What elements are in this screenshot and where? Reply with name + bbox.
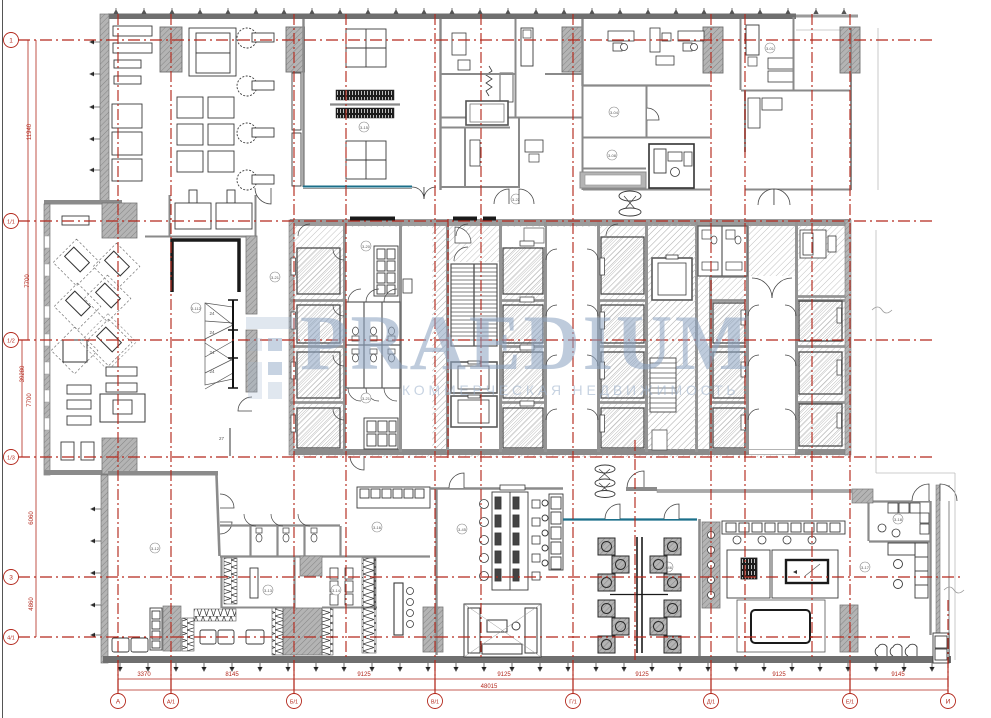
svg-text:1/3: 1/3 <box>7 456 15 462</box>
svg-text:PRAEDIUM: PRAEDIUM <box>300 299 751 386</box>
svg-text:9145: 9145 <box>891 672 905 678</box>
svg-text:3-20: 3-20 <box>362 244 371 249</box>
svg-text:3-14: 3-14 <box>332 588 341 593</box>
svg-text:3-01: 3-01 <box>766 46 775 51</box>
svg-text:3370: 3370 <box>137 672 151 678</box>
svg-text:11940: 11940 <box>27 123 33 140</box>
svg-text:4860: 4860 <box>29 597 35 611</box>
svg-text:9125: 9125 <box>497 672 511 678</box>
svg-text:3-21: 3-21 <box>362 396 371 401</box>
svg-text:А: А <box>116 699 121 706</box>
svg-text:1/2: 1/2 <box>7 339 15 345</box>
svg-text:39280: 39280 <box>20 365 26 382</box>
svg-text:3-17: 3-17 <box>861 565 870 570</box>
svg-text:3: 3 <box>9 575 13 582</box>
svg-text:1/1: 1/1 <box>7 220 15 226</box>
svg-text:И: И <box>946 699 951 706</box>
svg-text:7700: 7700 <box>25 274 31 288</box>
svg-text:3-21: 3-21 <box>271 275 280 280</box>
svg-text:3-12: 3-12 <box>151 546 160 551</box>
svg-text:3-13: 3-13 <box>264 588 273 593</box>
svg-text:9125: 9125 <box>772 672 786 678</box>
svg-text:4/1: 4/1 <box>7 636 15 642</box>
svg-text:24: 24 <box>209 311 215 316</box>
svg-text:Г/1: Г/1 <box>569 700 577 706</box>
svg-text:24: 24 <box>209 369 215 374</box>
svg-text:Б/1: Б/1 <box>290 700 298 706</box>
svg-text:3-15: 3-15 <box>360 125 369 130</box>
svg-text:27: 27 <box>219 436 225 441</box>
svg-text:9125: 9125 <box>357 672 371 678</box>
svg-text:Е/1: Е/1 <box>846 700 854 706</box>
svg-text:3-16: 3-16 <box>373 525 382 530</box>
svg-text:8145: 8145 <box>225 672 239 678</box>
svg-text:48015: 48015 <box>481 684 498 690</box>
svg-text:24: 24 <box>209 330 215 335</box>
svg-text:КОММЕРЧЕСКАЯ НЕДВИЖИМОСТЬ: КОММЕРЧЕСКАЯ НЕДВИЖИМОСТЬ <box>402 382 739 398</box>
svg-text:24: 24 <box>209 350 215 355</box>
svg-text:3-08: 3-08 <box>608 153 617 158</box>
svg-text:А/1: А/1 <box>167 700 175 706</box>
svg-text:1: 1 <box>9 38 13 45</box>
svg-text:3-04: 3-04 <box>610 110 619 115</box>
svg-text:В/1: В/1 <box>431 700 439 706</box>
svg-text:3-18: 3-18 <box>894 517 903 522</box>
svg-text:9125: 9125 <box>635 672 649 678</box>
svg-text:3-112: 3-112 <box>191 307 200 311</box>
svg-text:6060: 6060 <box>29 511 35 525</box>
svg-text:Д/1: Д/1 <box>707 700 715 706</box>
svg-text:3-45: 3-45 <box>458 527 467 532</box>
svg-text:7700: 7700 <box>27 393 33 407</box>
